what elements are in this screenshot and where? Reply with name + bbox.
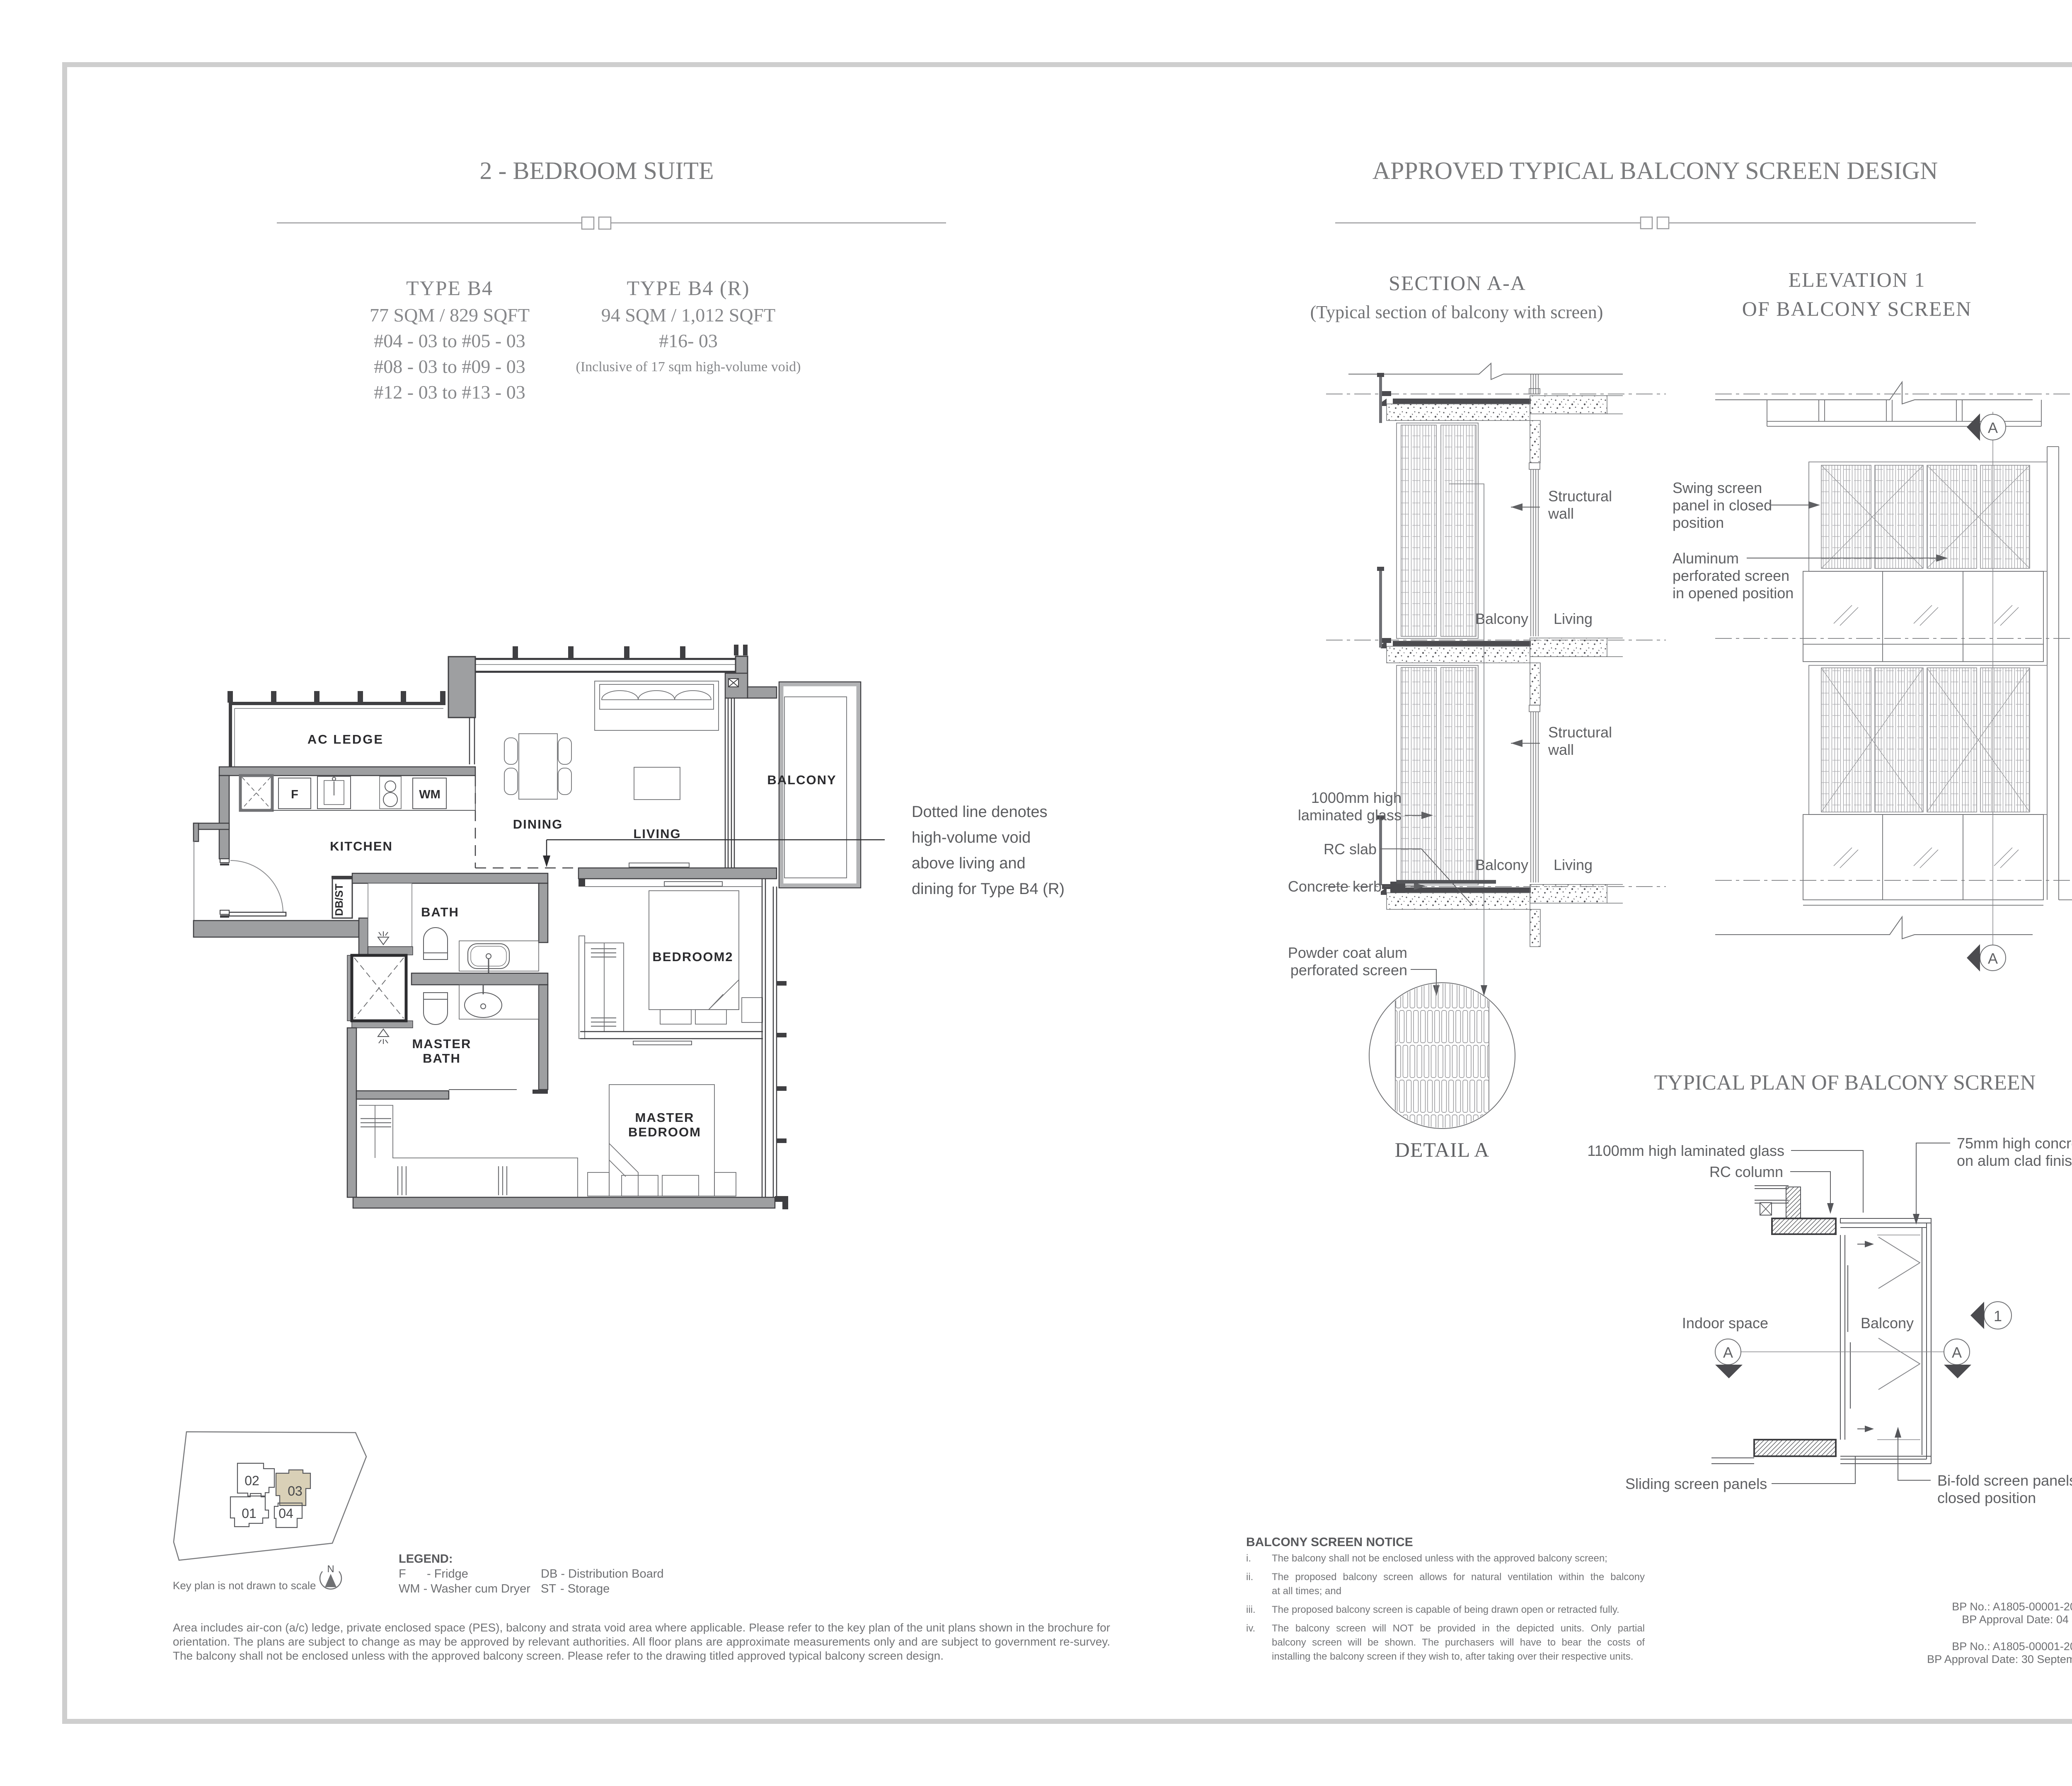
svg-text:DETAIL A: DETAIL A — [1395, 1138, 1489, 1161]
svg-text:04: 04 — [278, 1506, 293, 1521]
svg-text:APPROVED TYPICAL BALCONY SCREE: APPROVED TYPICAL BALCONY SCREEN DESIGN — [1372, 157, 1938, 184]
svg-text:BEDROOM2: BEDROOM2 — [652, 950, 733, 964]
svg-text:BALCONY SCREEN NOTICE: BALCONY SCREEN NOTICE — [1246, 1535, 1413, 1549]
svg-text:N: N — [327, 1564, 334, 1575]
svg-text:LIVING: LIVING — [633, 827, 681, 841]
svg-text:RC slab: RC slab — [1324, 841, 1377, 858]
svg-text:high-volume void: high-volume void — [912, 829, 1031, 846]
svg-text:Structural: Structural — [1548, 724, 1612, 741]
svg-text:WM: WM — [419, 788, 441, 801]
svg-text:03: 03 — [288, 1484, 303, 1498]
svg-text:Balcony: Balcony — [1861, 1315, 1914, 1332]
svg-text:Balcony: Balcony — [1475, 856, 1528, 873]
svg-text:#04 - 03 to #05 - 03: #04 - 03 to #05 - 03 — [374, 330, 525, 351]
svg-text:Dotted line denotes: Dotted line denotes — [912, 803, 1047, 821]
svg-text:SECTION A-A: SECTION A-A — [1389, 271, 1526, 295]
svg-text:WM - Washer cum Dryer: WM - Washer cum Dryer — [399, 1582, 530, 1595]
svg-text:in opened position: in opened position — [1673, 585, 1794, 602]
svg-text:Living: Living — [1554, 856, 1593, 873]
svg-text:on alum clad finish: on alum clad finish — [1957, 1152, 2072, 1169]
svg-text:#16- 03: #16- 03 — [659, 330, 718, 351]
svg-text:BP No.: A1805-00001-2018-BP01: BP No.: A1805-00001-2018-BP01 — [1952, 1600, 2072, 1613]
svg-text:Living: Living — [1554, 610, 1593, 627]
svg-text:LEGEND:: LEGEND: — [399, 1552, 453, 1566]
svg-text:94 SQM / 1,012 SQFT: 94 SQM / 1,012 SQFT — [601, 305, 775, 326]
svg-text:2 - BEDROOM SUITE: 2 - BEDROOM SUITE — [480, 157, 714, 184]
svg-text:Indoor space: Indoor space — [1682, 1315, 1768, 1332]
svg-text:dining for Type B4 (R): dining for Type B4 (R) — [912, 880, 1065, 898]
svg-text:MASTER: MASTER — [412, 1037, 472, 1051]
svg-text:TYPE B4 (R): TYPE B4 (R) — [627, 276, 750, 300]
svg-text:DINING: DINING — [513, 817, 563, 831]
svg-text:#12 - 03 to #13 - 03: #12 - 03 to #13 - 03 — [374, 382, 525, 403]
svg-text:BP No.: A1805-00001-2018-BP02: BP No.: A1805-00001-2018-BP02 — [1952, 1640, 2072, 1653]
svg-text:F: F — [399, 1567, 406, 1581]
svg-text:BP Approval Date: 30 September: BP Approval Date: 30 September 2019 — [1927, 1653, 2072, 1665]
svg-text:1100mm high laminated glass: 1100mm high laminated glass — [1587, 1142, 1784, 1159]
svg-text:BATH: BATH — [421, 905, 459, 919]
svg-text:Concrete kerb: Concrete kerb — [1288, 878, 1382, 895]
svg-text:wall: wall — [1548, 505, 1574, 522]
svg-text:BATH: BATH — [423, 1051, 461, 1066]
svg-text:Key plan is not drawn to scale: Key plan is not drawn to scale — [173, 1579, 316, 1592]
svg-text:Aluminum: Aluminum — [1673, 550, 1739, 567]
svg-text:Swing screen: Swing screen — [1673, 479, 1762, 496]
svg-text:TYPE B4: TYPE B4 — [406, 276, 493, 300]
svg-text:#08 - 03 to #09 - 03: #08 - 03 to #09 - 03 — [374, 356, 525, 377]
svg-text:RC column: RC column — [1709, 1163, 1783, 1180]
svg-text:above living and: above living and — [912, 855, 1026, 872]
svg-text:panel in closed: panel in closed — [1673, 497, 1772, 514]
svg-text:BP Approval Date: 04 July 2019: BP Approval Date: 04 July 2019 — [1962, 1613, 2072, 1626]
svg-text:perforated screen: perforated screen — [1290, 962, 1407, 979]
svg-text:A: A — [1723, 1344, 1733, 1361]
svg-text:F: F — [291, 788, 298, 801]
svg-text:(Inclusive of 17 sqm high-volu: (Inclusive of 17 sqm high-volume void) — [576, 359, 801, 375]
svg-text:DB/ST: DB/ST — [333, 884, 345, 916]
svg-text:Powder coat alum: Powder coat alum — [1288, 944, 1407, 961]
svg-text:- Storage: - Storage — [560, 1582, 610, 1595]
svg-text:(Typical section of balcony wi: (Typical section of balcony with screen) — [1310, 302, 1603, 322]
svg-text:A: A — [1988, 419, 1998, 436]
svg-text:closed position: closed position — [1937, 1489, 2036, 1506]
svg-text:KITCHEN: KITCHEN — [330, 839, 393, 853]
svg-text:Balcony: Balcony — [1475, 610, 1528, 627]
svg-text:perforated screen: perforated screen — [1673, 567, 1789, 584]
svg-text:AC LEDGE: AC LEDGE — [307, 732, 384, 747]
svg-text:01: 01 — [242, 1506, 257, 1521]
svg-text:75mm high concrete kerb: 75mm high concrete kerb — [1957, 1135, 2072, 1152]
svg-text:MASTER: MASTER — [635, 1110, 695, 1125]
svg-text:ELEVATION 1: ELEVATION 1 — [1789, 268, 1926, 291]
svg-text:1000mm high: 1000mm high — [1311, 789, 1402, 806]
svg-text:A: A — [1952, 1344, 1962, 1361]
svg-text:ST: ST — [541, 1582, 556, 1595]
svg-text:BALCONY: BALCONY — [767, 773, 836, 787]
svg-text:Bi-fold screen panels: Bi-fold screen panels — [1937, 1472, 2072, 1489]
svg-text:wall: wall — [1548, 741, 1574, 758]
svg-text:Structural: Structural — [1548, 488, 1612, 505]
svg-text:TYPICAL PLAN OF BALCONY SCREEN: TYPICAL PLAN OF BALCONY SCREEN — [1654, 1071, 2036, 1095]
svg-text:02: 02 — [244, 1473, 259, 1488]
svg-text:BEDROOM: BEDROOM — [628, 1125, 701, 1139]
svg-text:DB - Distribution Board: DB - Distribution Board — [541, 1567, 664, 1581]
svg-text:77 SQM / 829 SQFT: 77 SQM / 829 SQFT — [370, 305, 530, 326]
svg-text:1: 1 — [1994, 1307, 2002, 1324]
svg-text:- Fridge: - Fridge — [427, 1567, 468, 1581]
svg-text:Sliding screen panels: Sliding screen panels — [1625, 1475, 1767, 1492]
svg-text:A: A — [1988, 950, 1998, 967]
svg-text:OF BALCONY SCREEN: OF BALCONY SCREEN — [1742, 297, 1972, 320]
svg-text:laminated glass: laminated glass — [1298, 807, 1402, 824]
svg-text:position: position — [1673, 514, 1724, 531]
